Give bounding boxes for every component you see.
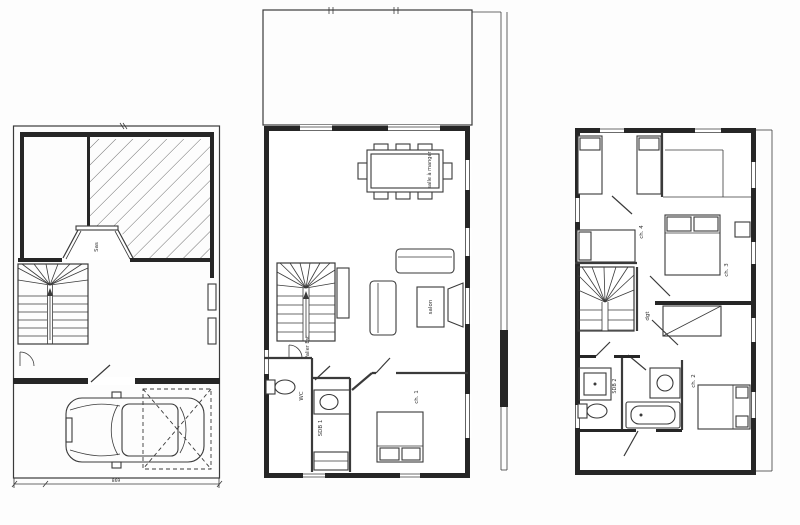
dining-table: salle à manger: [358, 144, 452, 199]
balcony: [263, 7, 472, 125]
window: [208, 318, 216, 344]
parking-space-dashed: [143, 389, 211, 469]
sas-door-frame: [76, 226, 118, 230]
staircase-ground: [18, 264, 88, 344]
toilet-tank: [578, 404, 587, 418]
upper-floor-plan: ch. 4 ch. 3: [574, 127, 772, 473]
dimension-value: 869: [112, 478, 121, 484]
bed-double: [698, 385, 750, 429]
bed-single: [637, 136, 661, 194]
sofa-short: [370, 281, 396, 335]
room-label-ch3: ch. 3: [724, 263, 730, 277]
wall: [130, 258, 212, 262]
garage: [66, 389, 211, 469]
room-label-sdb2: SDB 2: [612, 378, 618, 393]
room-label-dining: salle à manger: [426, 150, 433, 188]
tv-unit: [448, 283, 463, 327]
bed-double: [665, 215, 720, 275]
room-label-sdb1: SDB 1: [318, 420, 324, 437]
room-label-ch2: ch. 2: [691, 374, 697, 388]
shower-drain: [594, 383, 597, 386]
ground-floor-plan: Sas: [12, 123, 222, 488]
main-floor-plan: salle à manger salon: [263, 7, 508, 479]
toilet-tank: [266, 380, 275, 394]
room-label-wc: WC: [299, 391, 305, 400]
sofa-long: [396, 249, 454, 273]
wall: [210, 132, 214, 278]
upper-outer-thin-boundary: [756, 130, 772, 471]
party-wall-strip: [472, 12, 508, 470]
room-label-sas: Sas: [94, 242, 100, 252]
dimension-line: 869: [12, 478, 222, 488]
bed-double: [377, 412, 423, 462]
wall: [18, 258, 62, 262]
wall: [20, 132, 214, 137]
room-label-ch1: ch. 1: [414, 390, 420, 404]
room-label-dgt: dgt: [645, 311, 651, 321]
floor-plans-drawing: Sas: [0, 0, 800, 525]
wall: [87, 137, 90, 230]
room-label-ch4: ch. 4: [639, 225, 645, 239]
room-label-salon: salon: [428, 299, 434, 314]
car-mirror: [112, 462, 121, 468]
label-stair-landing: Palier Esc: [305, 335, 311, 359]
wall: [20, 132, 24, 262]
bathtub-drain: [640, 414, 643, 417]
car-top-view: [66, 392, 204, 468]
window: [208, 284, 216, 310]
bed-single: [578, 136, 602, 194]
toilet: [275, 380, 295, 394]
wall: [655, 301, 753, 305]
toilet: [587, 404, 607, 418]
car-mirror: [112, 392, 121, 398]
bed-single: [577, 230, 635, 262]
scanned-floorplan-page: Sas: [0, 0, 800, 525]
